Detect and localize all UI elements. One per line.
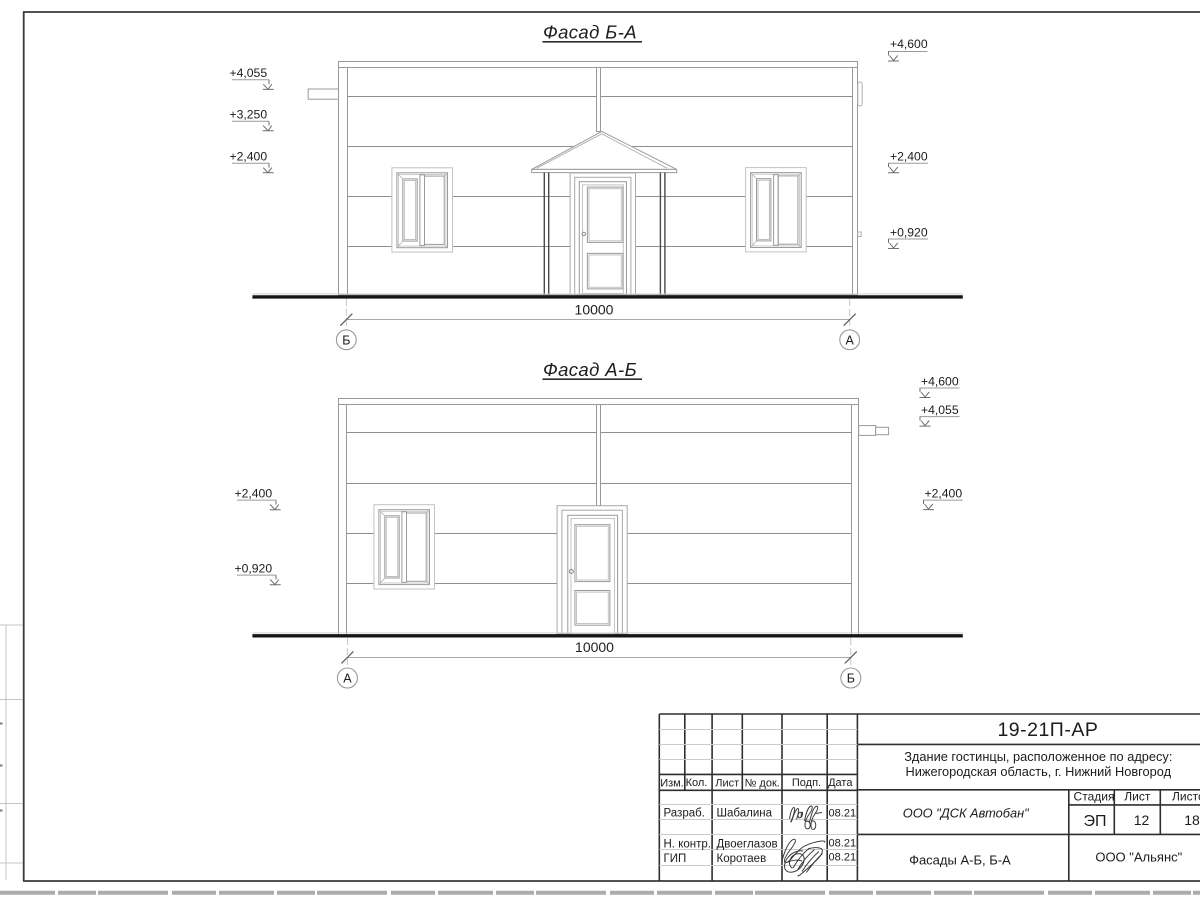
svg-text:Подп.: Подп.: [792, 777, 821, 789]
svg-text:18: 18: [1184, 812, 1200, 828]
svg-text:ГИП: ГИП: [664, 853, 687, 865]
svg-text:Б: Б: [342, 333, 350, 347]
svg-text:А: А: [343, 672, 352, 686]
svg-text:Б: Б: [847, 672, 855, 686]
svg-text:Лист: Лист: [715, 777, 739, 789]
svg-text:19-21П-АР: 19-21П-АР: [997, 719, 1098, 741]
svg-text:Стадия: Стадия: [1074, 790, 1115, 804]
svg-text:Изм.: Изм.: [660, 777, 684, 789]
svg-text:+4,055: +4,055: [921, 403, 959, 417]
svg-text:12: 12: [1134, 812, 1150, 828]
svg-text:+2,400: +2,400: [235, 486, 273, 500]
svg-text:+0,920: +0,920: [235, 561, 273, 575]
svg-text:Кол.: Кол.: [686, 777, 708, 789]
svg-text:+3,250: +3,250: [230, 108, 268, 122]
svg-text:Листов: Листов: [1172, 790, 1200, 804]
svg-text:08.21: 08.21: [829, 851, 857, 863]
svg-text:Фасады А-Б, Б-А: Фасады А-Б, Б-А: [909, 852, 1011, 867]
svg-text:Двоеглазов: Двоеглазов: [717, 838, 778, 850]
svg-text:+4,600: +4,600: [890, 37, 928, 51]
svg-text:Коротаев: Коротаев: [717, 853, 767, 865]
svg-text:+2,400: +2,400: [925, 486, 963, 500]
svg-text:ООО "Альянс": ООО "Альянс": [1095, 850, 1182, 865]
svg-text:Разраб.: Разраб.: [664, 808, 705, 820]
svg-text:10000: 10000: [575, 302, 614, 318]
svg-text:Дата: Дата: [828, 777, 853, 789]
svg-text:10000: 10000: [575, 639, 614, 655]
svg-text:Фасад А-Б: Фасад А-Б: [543, 359, 637, 380]
svg-text:+4,055: +4,055: [230, 66, 268, 80]
svg-text:А: А: [846, 333, 855, 347]
svg-text:Фасад Б-А: Фасад Б-А: [543, 22, 637, 43]
svg-text:Здание гостинцы, расположенное: Здание гостинцы, расположенное по адресу…: [904, 749, 1172, 764]
svg-text:ООО "ДСК Автобан": ООО "ДСК Автобан": [903, 806, 1030, 821]
svg-text:08.21: 08.21: [829, 838, 857, 850]
svg-text:+4,600: +4,600: [921, 375, 959, 389]
svg-text:08.21: 08.21: [829, 808, 857, 820]
svg-text:Лист: Лист: [1124, 790, 1151, 804]
svg-text:Н. контр.: Н. контр.: [664, 838, 711, 850]
svg-text:№ док.: № док.: [745, 777, 780, 789]
svg-text:+0,920: +0,920: [890, 225, 928, 239]
svg-text:ЭП: ЭП: [1084, 813, 1107, 830]
svg-text:+2,400: +2,400: [230, 150, 268, 164]
svg-text:Шабалина: Шабалина: [717, 808, 773, 820]
svg-text:Нижегородская область, г. Нижн: Нижегородская область, г. Нижний Новгоро…: [906, 764, 1172, 779]
svg-text:+2,400: +2,400: [890, 150, 928, 164]
